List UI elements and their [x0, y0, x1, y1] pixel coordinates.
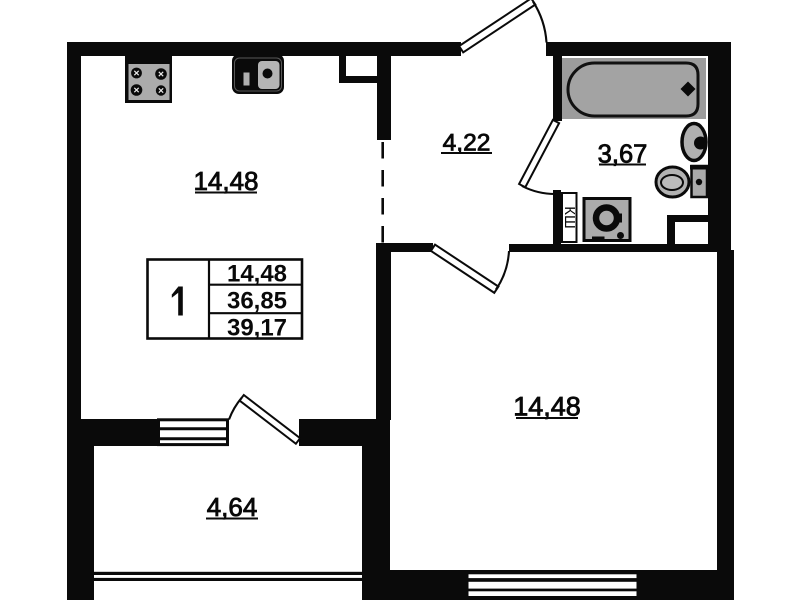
svg-text:36,85: 36,85 — [227, 288, 287, 315]
svg-text:14,48: 14,48 — [227, 261, 287, 288]
svg-text:КШ: КШ — [561, 206, 578, 229]
svg-text:39,17: 39,17 — [227, 315, 287, 342]
